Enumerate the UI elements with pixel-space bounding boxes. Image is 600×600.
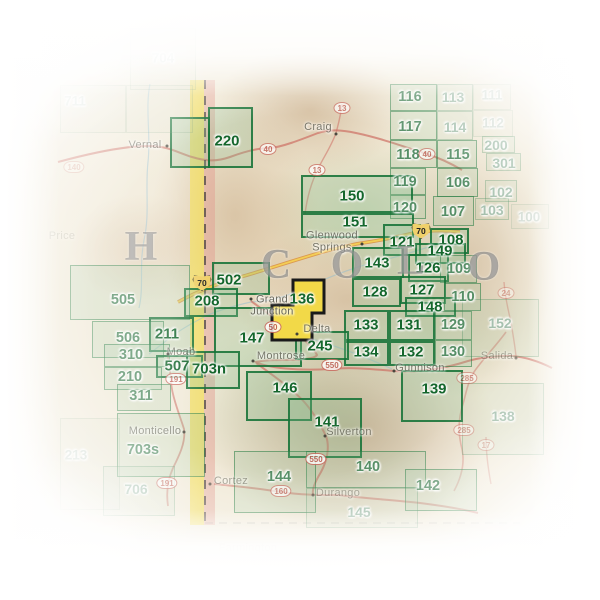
state-name-letter-o: O [331,241,364,289]
map-cell-label-145: 145 [347,504,370,520]
town-dot [515,357,518,360]
map-cell-label-150: 150 [339,188,364,205]
map-cell-label-210: 210 [118,369,142,385]
map-cell-label-144: 144 [267,469,291,485]
map-cell-label-142: 142 [416,478,440,494]
town-dot [166,145,169,148]
highway-13-shield-icon: 13 [309,164,326,176]
map-cell-label-143: 143 [364,255,389,272]
highway-160-shield-icon: 160 [270,485,291,497]
map-cell-label-113: 113 [442,89,465,105]
map-cell-label-208: 208 [194,293,219,310]
map-cell-label-100: 100 [518,210,541,225]
town-label-gunnison: Gunnison [395,363,445,375]
map-cell-label-711: 711 [64,94,86,109]
highway-285-shield-icon: 285 [453,424,474,436]
highway-140-shield-icon: 140 [63,161,84,173]
town-label-monticello: Monticello [129,426,182,438]
map-cell-label-507: 507 [164,358,189,375]
highway-40-shield-icon: 40 [260,143,277,155]
map-cell-label-106: 106 [446,175,470,191]
map-cell-label-133: 133 [353,317,378,334]
map-cell-label-130: 130 [441,344,465,360]
map-cell-label-506: 506 [116,330,140,346]
map-cell-label-706: 706 [124,481,147,497]
map-cell-label-117: 117 [398,119,421,135]
map-cell-label-128: 128 [362,284,387,301]
map-cell-label-132: 132 [398,344,423,361]
map-cell-label-139: 139 [421,381,446,398]
town-label-craig: Craig [304,122,332,134]
map-cell-label-112: 112 [482,116,504,131]
highway-17-shield-icon: 17 [478,439,495,451]
highway-550-shield-icon: 550 [321,359,342,371]
highway-13-shield-icon: 13 [334,102,351,114]
map-canvas: 1161131111171141121181152003011191061021… [0,0,600,600]
town-label-moab: Moab [167,347,196,359]
map-cell-label-115: 115 [446,147,469,163]
labels-layer: 1161131111171141121181152003011191061021… [0,0,600,600]
map-cell-label-110: 110 [451,289,474,305]
map-cell-label-103: 103 [480,202,503,218]
town-label-silverton: Silverton [326,427,372,439]
highway-285-shield-icon: 285 [456,372,477,384]
town-dot [312,494,315,497]
map-cell-label-148: 148 [417,299,442,316]
map-cell-label-138: 138 [491,408,514,424]
town-dot [209,483,212,486]
town-dot [296,333,299,336]
town-dot [250,298,253,301]
map-cell-label-119: 119 [393,174,416,190]
town-label-delta: Delta [303,324,330,336]
map-cell-label-502: 502 [216,272,241,289]
town-label-price: Price [49,231,76,243]
map-cell-label-211: 211 [155,326,179,343]
map-cell-label-220: 220 [214,133,239,150]
town-dot [183,431,186,434]
town-dot [324,435,327,438]
map-cell-label-140: 140 [356,459,380,475]
town-label-vernal: Vernal [129,140,162,152]
map-cell-label-111: 111 [481,88,502,103]
town-dot [393,370,396,373]
map-cell-label-703s: 703s [127,442,159,458]
town-dot [167,353,170,356]
state-name-letter-o: O [468,243,501,291]
map-cell-label-118: 118 [396,147,419,163]
map-cell-label-704: 704 [152,51,175,66]
highway-50-shield-icon: 50 [265,321,282,333]
map-cell-label-301: 301 [492,155,515,171]
map-cell-label-151: 151 [342,214,367,231]
state-name-letter-l: L [397,237,425,285]
map-cell-label-131: 131 [396,317,421,334]
map-cell-label-152: 152 [488,315,511,331]
state-name-letter-c: C [261,241,291,289]
map-cell-label-120: 120 [393,200,417,216]
map-cell-label-146: 146 [272,380,297,397]
town-label-farmington: Farmington [219,543,278,555]
highway-40-shield-icon: 40 [419,148,436,160]
state-name-letter-h: H [125,223,158,271]
interstate-70-shield-icon: 70 [193,275,212,291]
map-cell-label-213: 213 [65,448,88,463]
town-label-cortez: Cortez [214,476,248,488]
map-cell-label-149: 149 [427,243,452,260]
map-cell-label-107: 107 [441,204,465,220]
map-cell-label-147: 147 [239,330,264,347]
highway-191-shield-icon: 191 [156,477,177,489]
map-cell-label-129: 129 [441,317,465,333]
highway-550-shield-icon: 550 [305,453,326,465]
map-cell-label-116: 116 [398,89,421,105]
town-dot [335,133,338,136]
map-cell-label-310: 310 [119,347,143,363]
map-cell-label-505: 505 [111,292,135,308]
town-dot [252,360,255,363]
map-cell-label-311: 311 [129,388,152,404]
map-cell-label-114: 114 [444,119,467,135]
highway-191-shield-icon: 191 [165,373,186,385]
town-label-salida: Salida [481,351,513,363]
town-label-montrose: Montrose [257,351,305,363]
town-label-grand-junction: Grand Junction [250,294,293,317]
map-cell-label-703n: 703n [192,361,226,378]
map-cell-label-102: 102 [489,184,512,200]
map-cell-label-134: 134 [353,344,378,361]
town-label-durango: Durango [316,488,360,500]
map-cell-label-200: 200 [484,137,507,153]
map-cell-label-245: 245 [307,338,332,355]
